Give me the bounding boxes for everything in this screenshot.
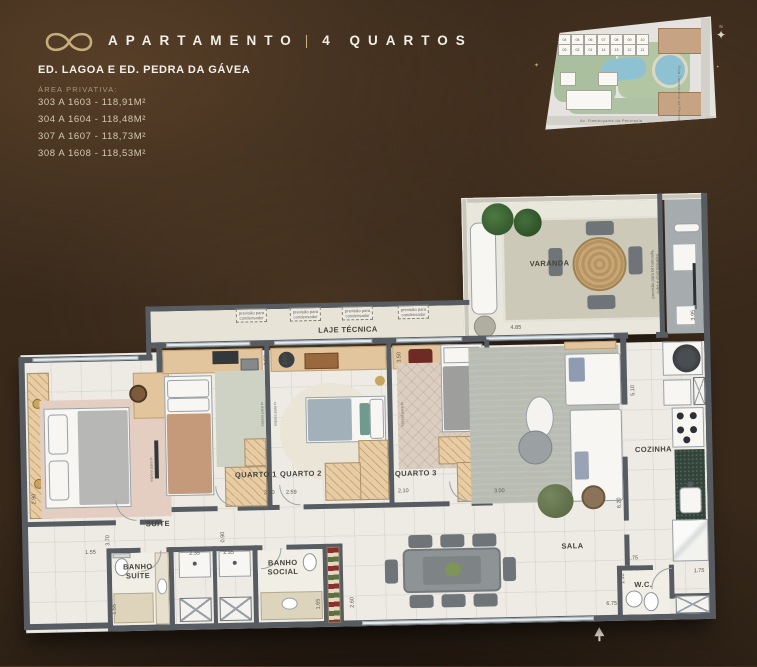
burner: [690, 412, 697, 419]
title-apartamento: APARTAMENTO: [108, 33, 299, 48]
unit-number: 02: [571, 44, 584, 56]
room-label: SUÍTE: [146, 520, 170, 529]
pillow: [49, 460, 70, 500]
room-label: QUARTO 3: [395, 469, 437, 478]
plan-note: espera para tv: [149, 457, 154, 481]
dining-chair: [409, 595, 433, 608]
floor-plan: VARANDALAJE TÉCNICAQUARTO 1QUARTO 2QUART…: [13, 193, 722, 667]
ventilation-duct: [676, 595, 710, 614]
sparkle-icon: ✦: [534, 62, 539, 69]
street-right: [701, 18, 710, 118]
plan-note: previsão para condensador: [342, 306, 374, 321]
building: [566, 90, 612, 110]
private-area-label: ÁREA PRIVATIVA:: [38, 85, 118, 94]
infinity-logo: [40, 24, 98, 60]
plan-note: espera para tv: [273, 402, 278, 426]
room-label: LAJE TÉCNICA: [318, 325, 378, 335]
varanda-chair: [628, 246, 643, 274]
page: { "header": { "logo_icon": "infinity-log…: [0, 0, 757, 666]
dining-chair: [503, 557, 516, 581]
plan-note: previsão para condensador: [290, 307, 322, 322]
varanda-chair: [586, 221, 614, 236]
room-label: COZINHA: [635, 445, 672, 454]
sparkle-icon: ✦: [716, 64, 719, 69]
room-label: SALA: [561, 542, 583, 551]
building: [598, 72, 618, 86]
dining-chair: [472, 533, 496, 546]
dimension-label: 3.70: [105, 535, 111, 546]
dimension-label: 1.75: [694, 568, 705, 574]
room-label: BANHO SUÍTE: [123, 563, 153, 581]
area-line: 307 A 1607 - 118,73M²: [38, 131, 146, 142]
dimension-label: 1.10: [620, 573, 626, 584]
room-label: VARANDA: [530, 259, 570, 268]
kitchen-sink: [679, 487, 702, 513]
dimension-label: 3.95: [691, 310, 697, 321]
fridge: [672, 519, 709, 562]
compass-north-icon: N✦: [716, 24, 726, 38]
dimension-label: 1.55: [85, 550, 96, 556]
dimension-label: 2.50: [264, 490, 275, 496]
tap: [233, 561, 237, 565]
building-ed-lagoa: [658, 28, 706, 54]
dimension-label: 1.55: [112, 604, 118, 615]
dimension-label: 3.00: [494, 488, 505, 494]
page-title: APARTAMENTO|4 QUARTOS: [108, 33, 473, 48]
shelf: [304, 353, 338, 370]
dining-chair: [440, 534, 464, 547]
ventilation-duct: [693, 377, 706, 405]
building-units-row: 03020114131211: [558, 44, 649, 56]
dimension-label: 3.50: [396, 352, 402, 363]
room-label: QUARTO 2: [280, 470, 322, 479]
room-label: W.C.: [634, 581, 652, 590]
north-arrow-icon: [594, 627, 604, 641]
plan-note: previsão para condensador: [398, 305, 430, 320]
shelf: [674, 223, 700, 233]
suite-blanket: [78, 410, 130, 505]
bar-shelf: [326, 547, 341, 623]
sink: [157, 578, 167, 594]
lagoon: [652, 52, 688, 88]
building-names: ED. LAGOA E ED. PEDRA DA GÁVEA: [38, 64, 250, 76]
dimension-label: 2.59: [286, 490, 297, 496]
dimension-label: 2.10: [398, 488, 409, 494]
dimension-label: 2.60: [349, 597, 355, 608]
pillow: [167, 379, 209, 398]
plan-note: previsão para kit bancada, cuba e churra…: [649, 249, 660, 298]
pillow: [167, 397, 209, 412]
burner: [683, 436, 690, 443]
unit-number: 13: [610, 44, 623, 56]
dining-chair: [441, 594, 465, 607]
shower: [113, 593, 154, 624]
blanket: [307, 398, 352, 441]
dimension-label: 1.75: [627, 555, 638, 561]
wardrobe: [358, 440, 389, 501]
console: [564, 341, 616, 350]
unit-number: 11: [636, 44, 649, 56]
dining-chair: [473, 593, 497, 606]
wardrobe: [244, 438, 267, 466]
tap: [193, 562, 197, 566]
street-right-label: Rua Tamarindos da Península: [677, 66, 682, 128]
varanda-chair: [587, 295, 615, 310]
wall-segment: [656, 332, 668, 338]
ventilation-duct: [179, 597, 211, 622]
wall-segment: [145, 307, 151, 360]
building: [560, 72, 576, 86]
dining-chair: [408, 535, 432, 548]
room-label: QUARTO 1: [235, 471, 277, 480]
compass-n-label: N: [716, 24, 726, 30]
dimension-label: 1.65: [316, 599, 322, 610]
ventilation-duct: [219, 596, 251, 621]
tv: [212, 351, 238, 365]
dimension-label: 5.10: [630, 385, 636, 396]
basket: [240, 358, 258, 370]
area-line: 304 A 1604 - 118,48M²: [38, 114, 146, 125]
dimension-label: 0.90: [220, 532, 226, 543]
unit-number: 01: [584, 44, 597, 56]
dining-chair: [385, 559, 398, 583]
pillow: [574, 451, 589, 479]
dimension-label: 3.50: [282, 354, 288, 365]
building-ed-pedra-da-gavea: [658, 92, 706, 116]
dimension-label: 3.50: [263, 355, 269, 366]
room-label: BANHO SOCIAL: [267, 559, 298, 577]
pillow: [48, 414, 69, 454]
pillow: [359, 403, 370, 435]
title-quartos: 4 QUARTOS: [322, 33, 473, 48]
plan-note: espera para tv: [400, 402, 405, 426]
dimension-label: 6.20: [616, 497, 622, 508]
unit-number: 03: [558, 44, 571, 56]
wardrobe: [325, 462, 362, 501]
tv: [154, 440, 159, 478]
plan-note: espera para tv: [260, 402, 265, 426]
area-line: 303 A 1603 - 118,91M²: [38, 97, 146, 108]
dimension-label: 6.75: [606, 601, 617, 607]
plan-note: previsão para condensador: [236, 308, 268, 323]
dimension-label: 4.85: [510, 325, 521, 331]
blanket: [167, 413, 213, 494]
street-bottom-label: Av. Flamboyants da Península: [580, 118, 642, 123]
tap: [687, 481, 693, 487]
dimension-label: 2.35: [223, 550, 234, 556]
dimension-label: 2.35: [189, 551, 200, 557]
pillow: [569, 357, 585, 381]
title-divider: |: [305, 33, 317, 48]
varanda-bench: [470, 222, 498, 315]
pillow: [369, 399, 384, 439]
dimension-label: 2.90: [31, 494, 37, 505]
site-map: 04050607080910 03020114131211 Av. Flambo…: [540, 14, 718, 132]
unit-number: 12: [623, 44, 636, 56]
unit-number: 14: [597, 44, 610, 56]
area-line: 308 A 1608 - 118,53M²: [38, 148, 146, 159]
dishwasher: [663, 379, 692, 406]
